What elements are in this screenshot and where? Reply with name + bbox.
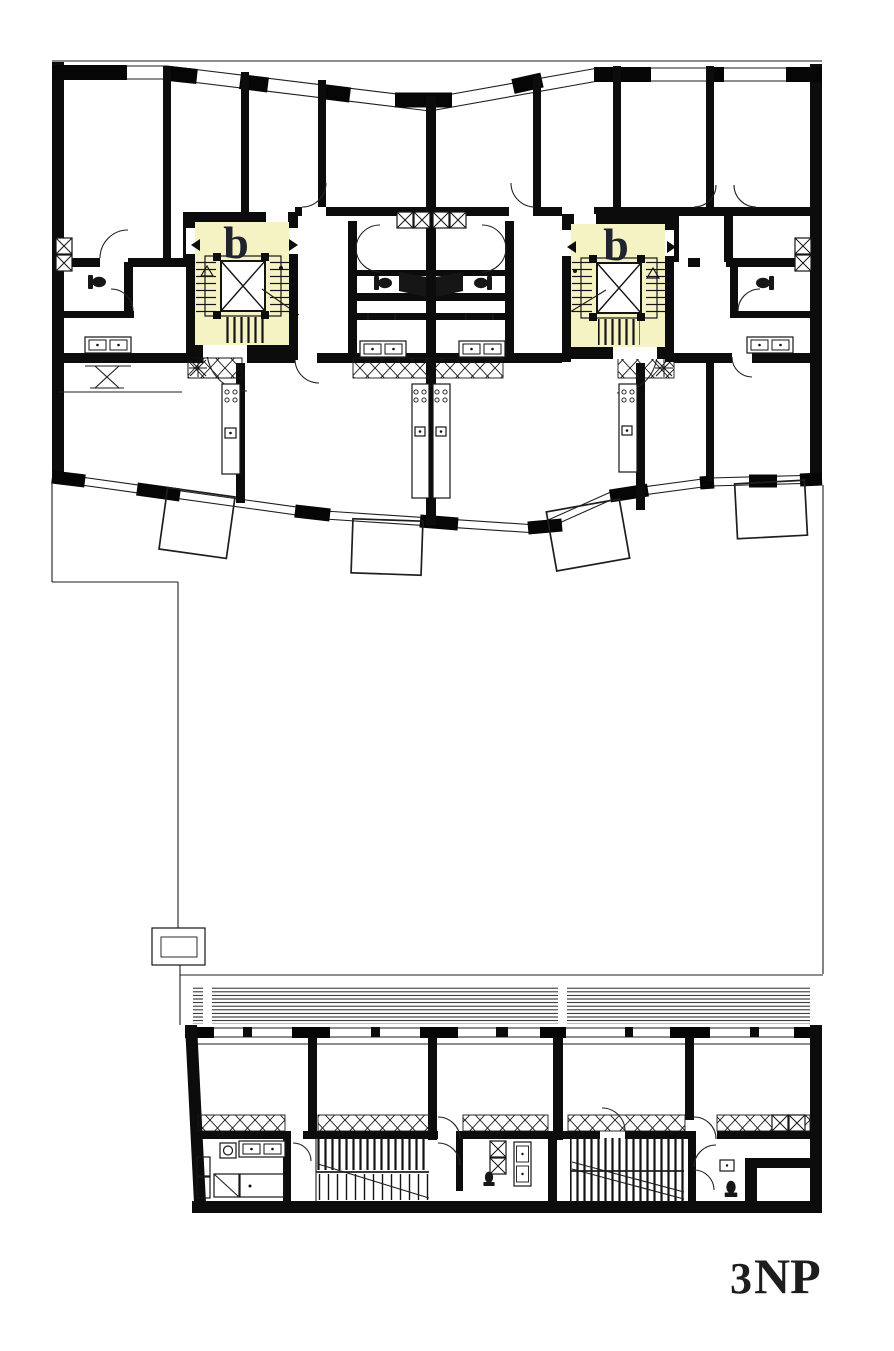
floor-suffix: NP xyxy=(754,1248,821,1304)
right-exterior-wall xyxy=(810,64,822,484)
toilet-icon xyxy=(88,275,106,289)
core-label-left: b xyxy=(223,217,249,268)
wardrobe-hatch-strips xyxy=(198,1115,810,1131)
upper-building-wing xyxy=(52,61,822,533)
north-wall-window-band xyxy=(185,1027,822,1044)
site-boundary-lines xyxy=(52,482,823,1025)
toilet-icon xyxy=(725,1181,738,1197)
shaft-icon xyxy=(56,238,72,254)
toilet-room-right xyxy=(720,1160,737,1197)
double-sink-icon xyxy=(239,1141,285,1157)
stair-left xyxy=(316,1138,429,1202)
floor-plan-canvas: b b xyxy=(0,0,894,1351)
washroom-middle xyxy=(483,1141,531,1186)
bathtub-icon xyxy=(240,1174,284,1197)
vent-star-icon xyxy=(189,359,207,377)
balcony xyxy=(735,480,808,539)
floor-number: 3 xyxy=(730,1254,752,1303)
balcony xyxy=(351,519,423,575)
stair-right xyxy=(570,1138,684,1202)
core-label-right: b xyxy=(603,219,629,270)
left-exterior-wall xyxy=(52,62,64,482)
floor-label: 3 NP xyxy=(730,1248,821,1304)
shaft-icon xyxy=(772,1115,788,1131)
stair-core-left: b xyxy=(186,212,299,360)
stair-core-right: b xyxy=(562,214,676,362)
pergola-louvers xyxy=(193,986,810,1024)
double-sink-icon xyxy=(85,337,131,353)
bathroom-left xyxy=(197,1141,285,1198)
table-icon xyxy=(58,366,182,392)
kitchen-counters xyxy=(222,384,637,498)
right-exterior-wall xyxy=(810,1025,822,1213)
lower-building-wing xyxy=(185,984,822,1213)
toilet-icon xyxy=(224,1146,233,1155)
balconies xyxy=(159,480,807,575)
